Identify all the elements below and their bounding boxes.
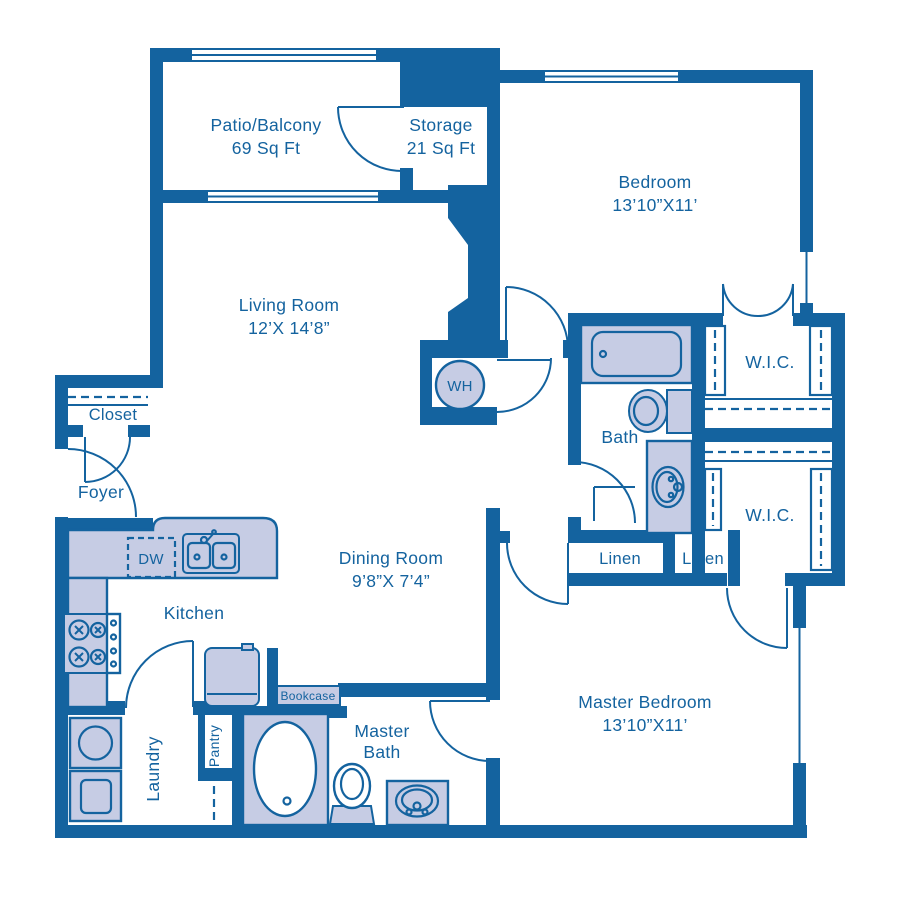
wall-pantry-left bbox=[198, 715, 205, 772]
living-room-dims-label: 12’X 14’8” bbox=[248, 318, 330, 338]
wall-patio-left bbox=[150, 48, 163, 203]
wic-upper-label: W.I.C. bbox=[745, 352, 794, 372]
storage-label: Storage bbox=[409, 115, 472, 135]
patio-label: Patio/Balcony bbox=[211, 115, 322, 135]
foyer-label: Foyer bbox=[78, 482, 124, 502]
stove-knob-panel bbox=[107, 614, 120, 673]
wall-master-right-upper bbox=[793, 585, 806, 628]
floor-plan-drawing: Patio/Balcony 69 Sq Ft Storage 21 Sq Ft … bbox=[0, 0, 900, 900]
refrigerator bbox=[205, 648, 259, 706]
wh-door-arc bbox=[497, 358, 551, 412]
linen-right-label: Linen bbox=[682, 550, 724, 568]
wall-left-lower bbox=[55, 517, 68, 838]
closet-label: Closet bbox=[89, 406, 138, 424]
wall-pantry-bottom bbox=[198, 768, 240, 781]
master-bath-label-line1: Master bbox=[354, 721, 409, 741]
wall-wic-right bbox=[832, 313, 845, 586]
laundry-fixtures bbox=[70, 718, 121, 821]
bedroom-label: Bedroom bbox=[618, 172, 691, 192]
bath-door-leaf bbox=[594, 487, 635, 521]
water-heater-label: WH bbox=[447, 378, 473, 395]
master-bedroom-dims-label: 13’10”X11’ bbox=[602, 715, 687, 735]
masterbath-door-arc bbox=[430, 701, 490, 761]
wall-foyer-kitchen-stub bbox=[68, 518, 153, 530]
bedroom-dims-label: 13’10”X11’ bbox=[612, 195, 697, 215]
storage-area-label: 21 Sq Ft bbox=[407, 138, 476, 158]
wall-wic-bottom bbox=[785, 573, 845, 586]
bath-vanity bbox=[647, 441, 692, 533]
wall-pantry-masterbath bbox=[232, 701, 243, 825]
wall-bottom bbox=[55, 825, 807, 838]
linen-left-label: Linen bbox=[599, 550, 641, 568]
kitchen-door-arc bbox=[126, 641, 193, 708]
master-toilet-bowl bbox=[334, 764, 370, 808]
dishwasher-label: DW bbox=[138, 551, 164, 568]
dining-room-dims-label: 9’8”X 7’4” bbox=[352, 571, 430, 591]
wall-wic-middle-divider bbox=[692, 428, 845, 442]
bookcase-label: Bookcase bbox=[280, 689, 335, 703]
wall-bath-left bbox=[568, 313, 581, 465]
master-tub bbox=[254, 722, 316, 816]
wall-dining-hall bbox=[486, 508, 500, 700]
interior-walls bbox=[55, 62, 845, 838]
bath-label: Bath bbox=[601, 427, 638, 447]
refrigerator-handle bbox=[242, 644, 253, 650]
wall-closet-left bbox=[55, 375, 68, 449]
wall-storage-corner-block bbox=[400, 48, 500, 107]
wic-double-door-arcs bbox=[723, 284, 793, 316]
wic-lower-label: W.I.C. bbox=[745, 505, 794, 525]
pantry-label: Pantry bbox=[206, 725, 222, 767]
patio-area-label: 69 Sq Ft bbox=[232, 138, 301, 158]
foyer-closet-door-arc bbox=[85, 437, 130, 482]
wall-living-left bbox=[150, 190, 163, 388]
exterior-walls bbox=[55, 48, 845, 838]
wall-masterbath-top bbox=[338, 683, 498, 697]
wall-bath-wic-divider bbox=[692, 313, 705, 586]
master-bedroom-label: Master Bedroom bbox=[578, 692, 712, 712]
wall-dining-door-stub bbox=[500, 531, 510, 543]
master-bath-label-line2: Bath bbox=[363, 742, 400, 762]
bath-door-arc bbox=[574, 462, 635, 523]
wall-closet-top bbox=[55, 375, 163, 388]
master-bedroom-door-arc bbox=[727, 588, 787, 648]
wic-double-door-leaves bbox=[723, 284, 793, 316]
kitchen-label: Kitchen bbox=[164, 603, 224, 623]
floor-plan-page: Patio/Balcony 69 Sq Ft Storage 21 Sq Ft … bbox=[0, 0, 900, 900]
master-bath-fixtures bbox=[243, 714, 448, 825]
bedroom-door-arc bbox=[506, 287, 568, 349]
laundry-label: Laundry bbox=[143, 736, 163, 801]
dining-room-label: Dining Room bbox=[339, 548, 443, 568]
wall-bedroom-right-upper bbox=[800, 70, 813, 252]
toilet-tank bbox=[667, 390, 692, 433]
closet-door-opening bbox=[83, 425, 128, 437]
wall-dining-hall-lower bbox=[486, 758, 500, 838]
storage-door-arc bbox=[338, 107, 404, 171]
hall-door-arc bbox=[507, 543, 568, 604]
living-room-label: Living Room bbox=[239, 295, 340, 315]
wall-linen-right bbox=[728, 530, 740, 586]
